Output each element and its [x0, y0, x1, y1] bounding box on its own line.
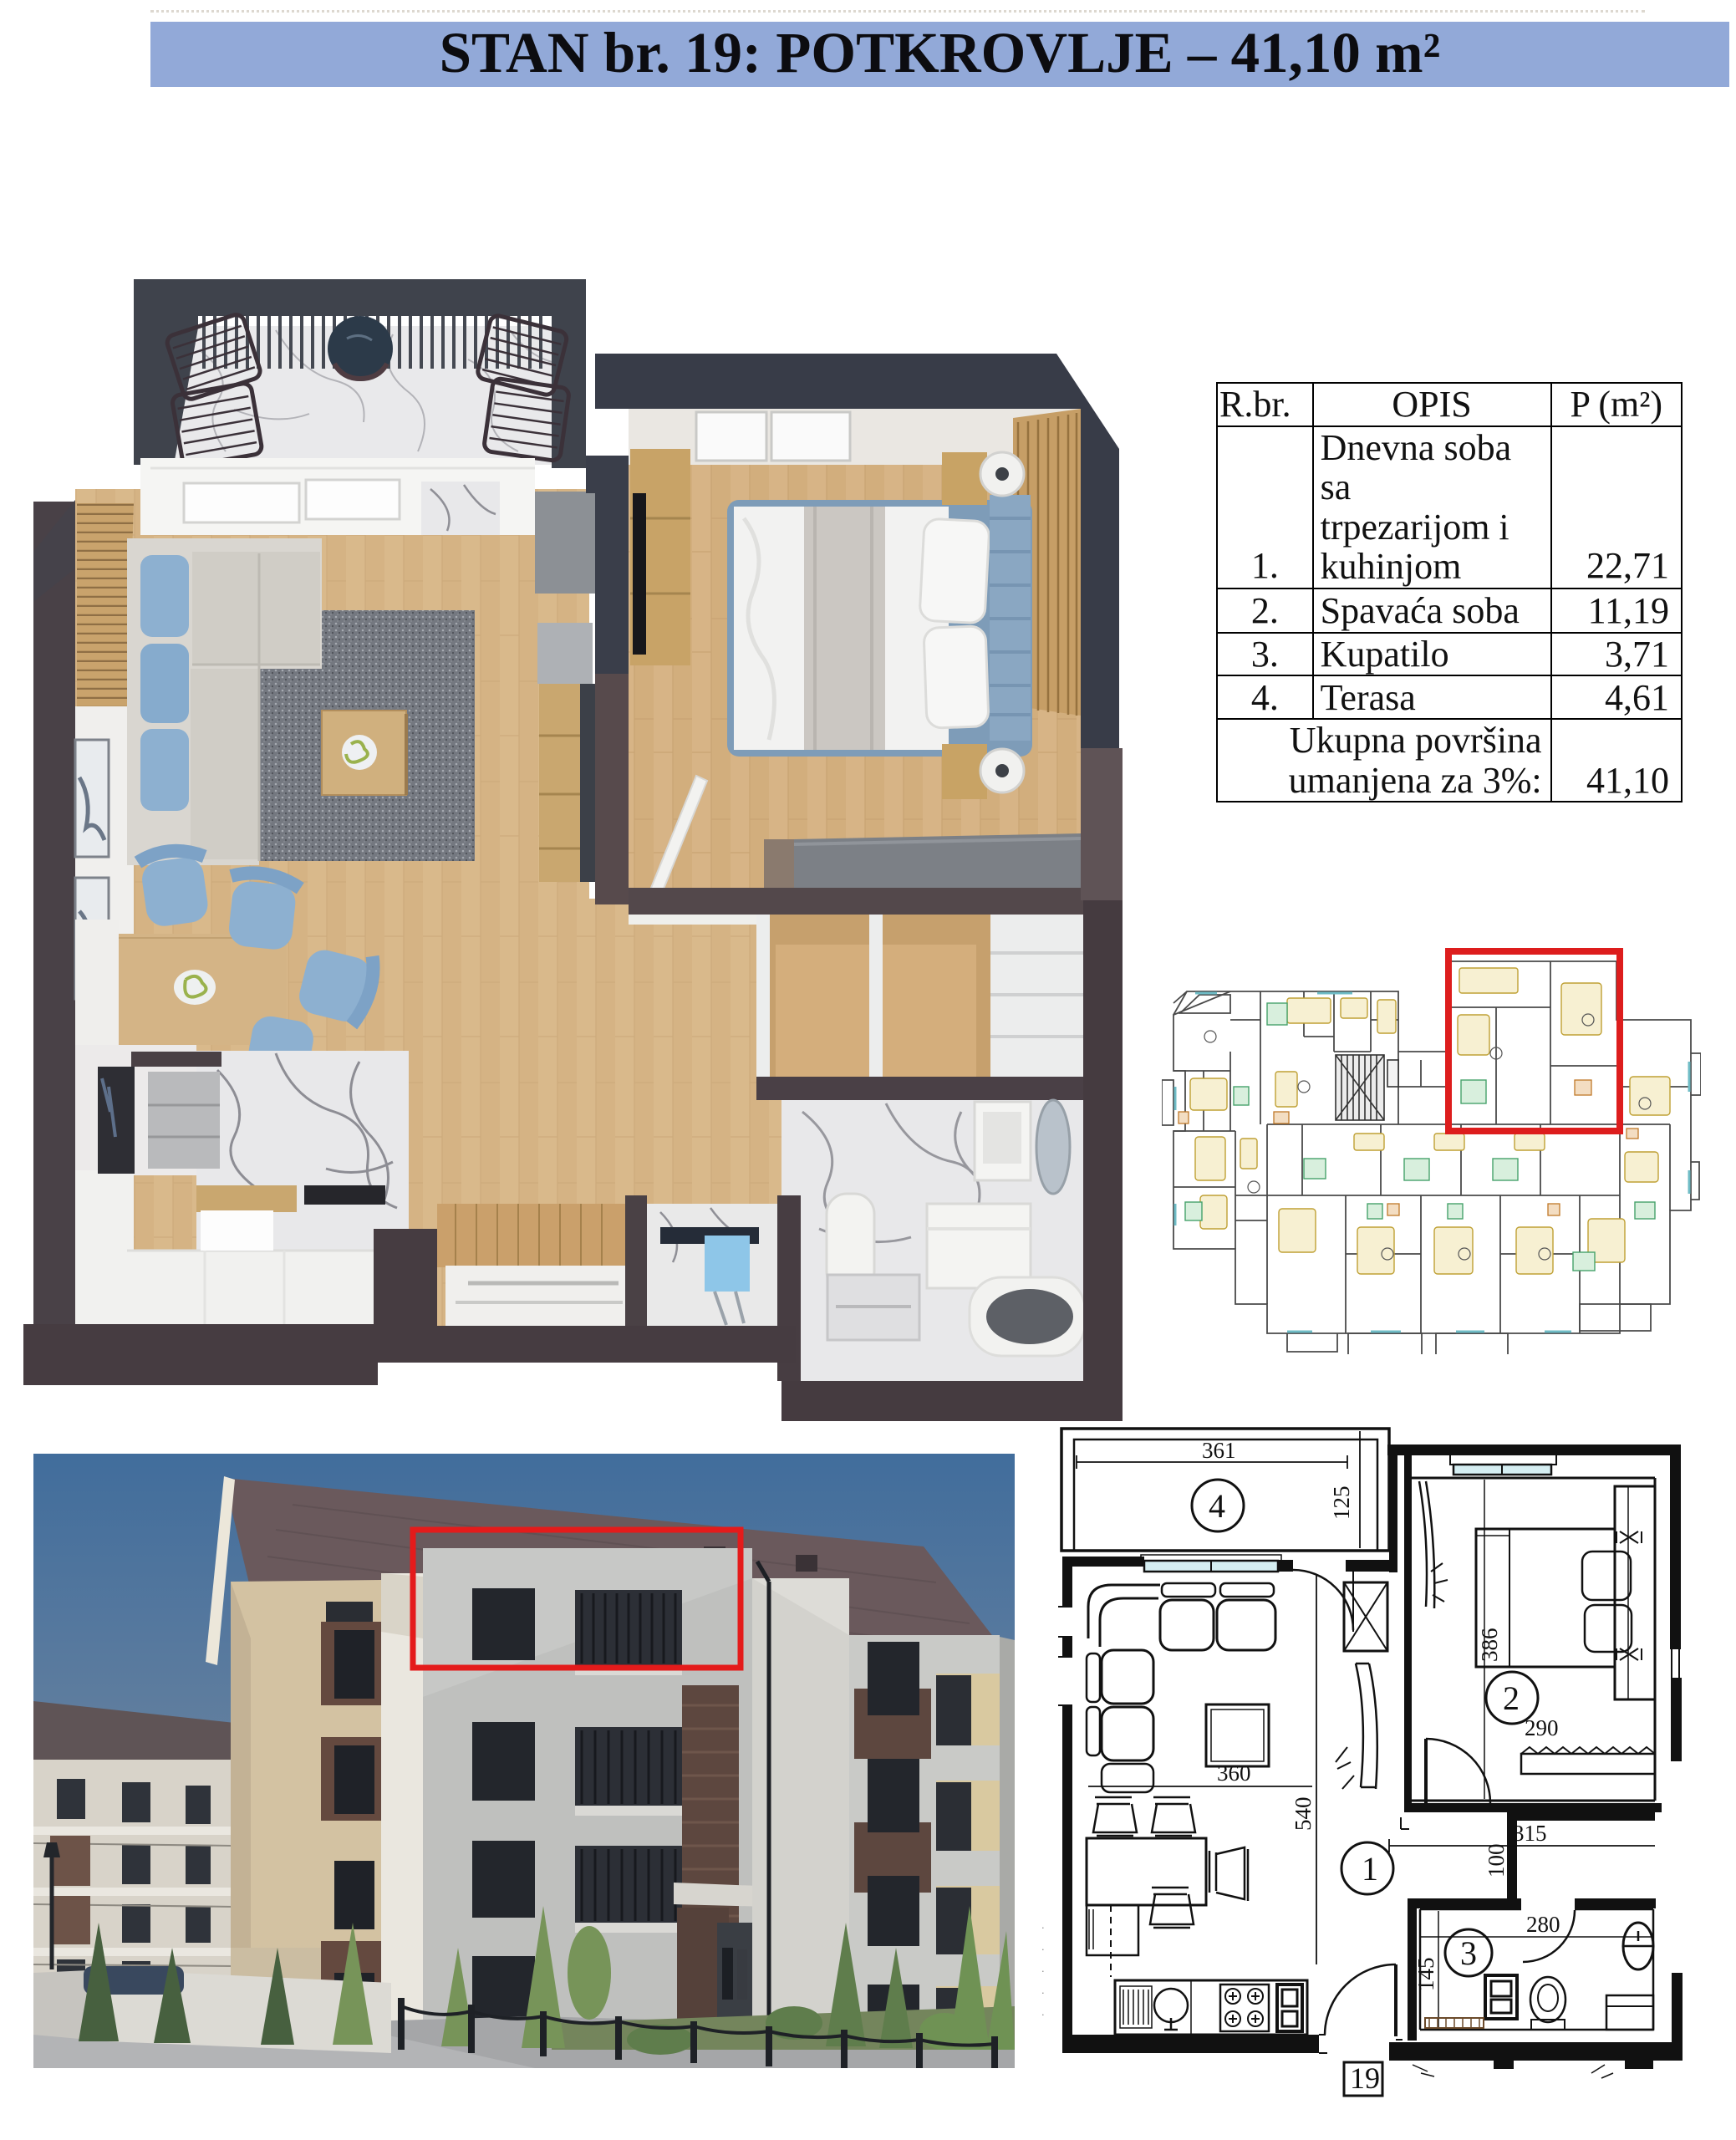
svg-text:360: 360 [1217, 1760, 1251, 1786]
svg-text:1: 1 [1362, 1850, 1378, 1888]
svg-text:280: 280 [1526, 1912, 1560, 1937]
svg-text:315: 315 [1513, 1821, 1547, 1846]
svg-text:386: 386 [1477, 1628, 1502, 1663]
svg-text:4: 4 [1209, 1487, 1225, 1525]
svg-text:100: 100 [1484, 1844, 1509, 1878]
svg-text:361: 361 [1202, 1438, 1236, 1463]
svg-text:2: 2 [1503, 1679, 1520, 1717]
svg-text:3: 3 [1460, 1934, 1477, 1972]
svg-text:19: 19 [1350, 2061, 1380, 2095]
svg-text:540: 540 [1291, 1797, 1316, 1832]
svg-text:290: 290 [1525, 1715, 1559, 1740]
svg-text:145: 145 [1413, 1958, 1438, 1992]
svg-text:125: 125 [1329, 1486, 1354, 1521]
